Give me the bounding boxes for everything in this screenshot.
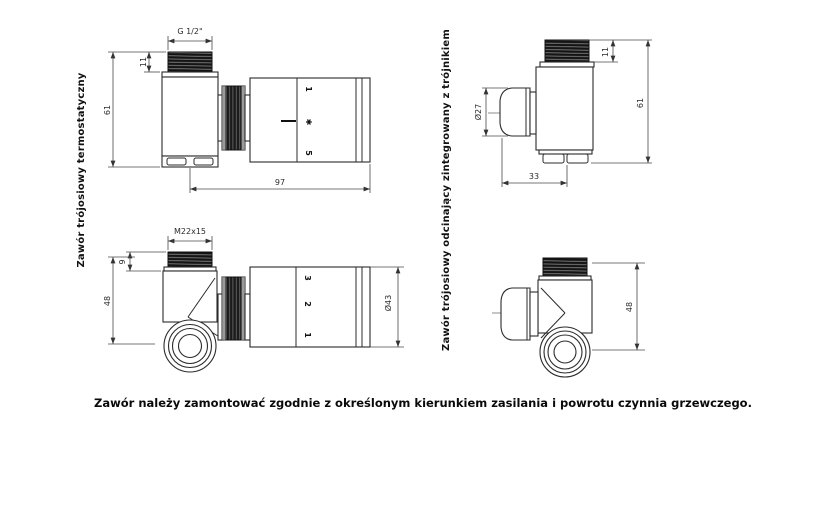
knob-neck: [530, 292, 538, 336]
knob-neck: [530, 92, 536, 134]
dim-label-9: 9: [118, 259, 127, 264]
dim-height: 48: [592, 263, 645, 350]
thread-flange: [539, 276, 591, 280]
pipe-port-bore: [554, 341, 576, 363]
valve-body: [162, 77, 218, 156]
threaded-tail: [545, 40, 589, 62]
thread-flange: [162, 72, 218, 77]
dim-thread-length: 9: [118, 252, 166, 271]
nut-slot: [543, 154, 564, 163]
dim-height: 61: [103, 52, 160, 167]
dim-label-61: 61: [103, 105, 112, 115]
dim-height: 48: [103, 257, 155, 344]
head-scale-mark: ✱: [304, 119, 313, 126]
dim-label-11: 11: [139, 57, 148, 67]
valve-body: [536, 67, 593, 150]
view-shutoff-angled: 48: [492, 258, 645, 377]
thread-flange: [164, 267, 216, 271]
dim-length: 97: [190, 164, 370, 193]
dim-label-61: 61: [636, 98, 645, 108]
dim-thread-g12: G 1/2": [168, 27, 212, 50]
dim-label-11: 11: [601, 47, 610, 57]
threaded-tail: [168, 52, 212, 72]
view-thermostatic-straight: G 1/2" 1 ✱ 5 11: [103, 27, 370, 193]
dim-label-m22: M22x15: [174, 227, 206, 236]
dim-label-d27: Ø27: [473, 104, 483, 120]
dim-label-48: 48: [103, 296, 112, 306]
pipe-port-bore: [179, 335, 202, 358]
dim-label-g12: G 1/2": [177, 27, 202, 36]
view-thermostatic-angled: M22x15 3 2 1 9: [103, 227, 404, 372]
dim-label-33: 33: [529, 172, 539, 181]
dim-head-diameter: Ø43: [370, 267, 404, 347]
view-shutoff-straight: 11 61 Ø27 33: [473, 40, 652, 187]
dim-label-97: 97: [275, 178, 285, 187]
threaded-tail: [168, 252, 212, 267]
mounting-instruction-caption: Zawór należy zamontować zgodnie z określ…: [94, 396, 752, 410]
head-scale-mark: 3: [303, 275, 312, 281]
technical-drawing-page: Zawór trójosiowy termostatyczny Zawór tr…: [0, 0, 826, 505]
adapter-cap: [222, 277, 226, 340]
dim-thread-length: 11: [108, 52, 166, 72]
dim-label-d43: Ø43: [383, 295, 393, 311]
dim-label-48: 48: [625, 302, 634, 312]
valve-body: [538, 280, 592, 333]
thread-flange: [540, 62, 594, 67]
neck: [245, 294, 250, 340]
head-scale-mark: 2: [303, 301, 312, 307]
head-scale-mark: 5: [304, 150, 313, 156]
head-scale-mark: 1: [303, 332, 312, 338]
dim-height: 61: [591, 40, 652, 163]
bottom-nut: [539, 150, 592, 154]
valve-drawing-canvas: Zawór trójosiowy termostatyczny Zawór tr…: [0, 0, 826, 505]
shutoff-valve-title: Zawór trójosiowy odcinający zintegrowany…: [440, 29, 452, 351]
dim-thread-length: 11: [589, 40, 652, 62]
adapter-cap: [222, 86, 226, 150]
thermostatic-valve-title: Zawór trójosiowy termostatyczny: [75, 72, 87, 267]
neck: [245, 95, 250, 141]
dim-thread-m22: M22x15: [168, 227, 212, 250]
threaded-tail: [543, 258, 587, 276]
head-scale-mark: 1: [304, 86, 313, 92]
nut-slot: [567, 154, 588, 163]
shutoff-knob: [501, 288, 530, 340]
